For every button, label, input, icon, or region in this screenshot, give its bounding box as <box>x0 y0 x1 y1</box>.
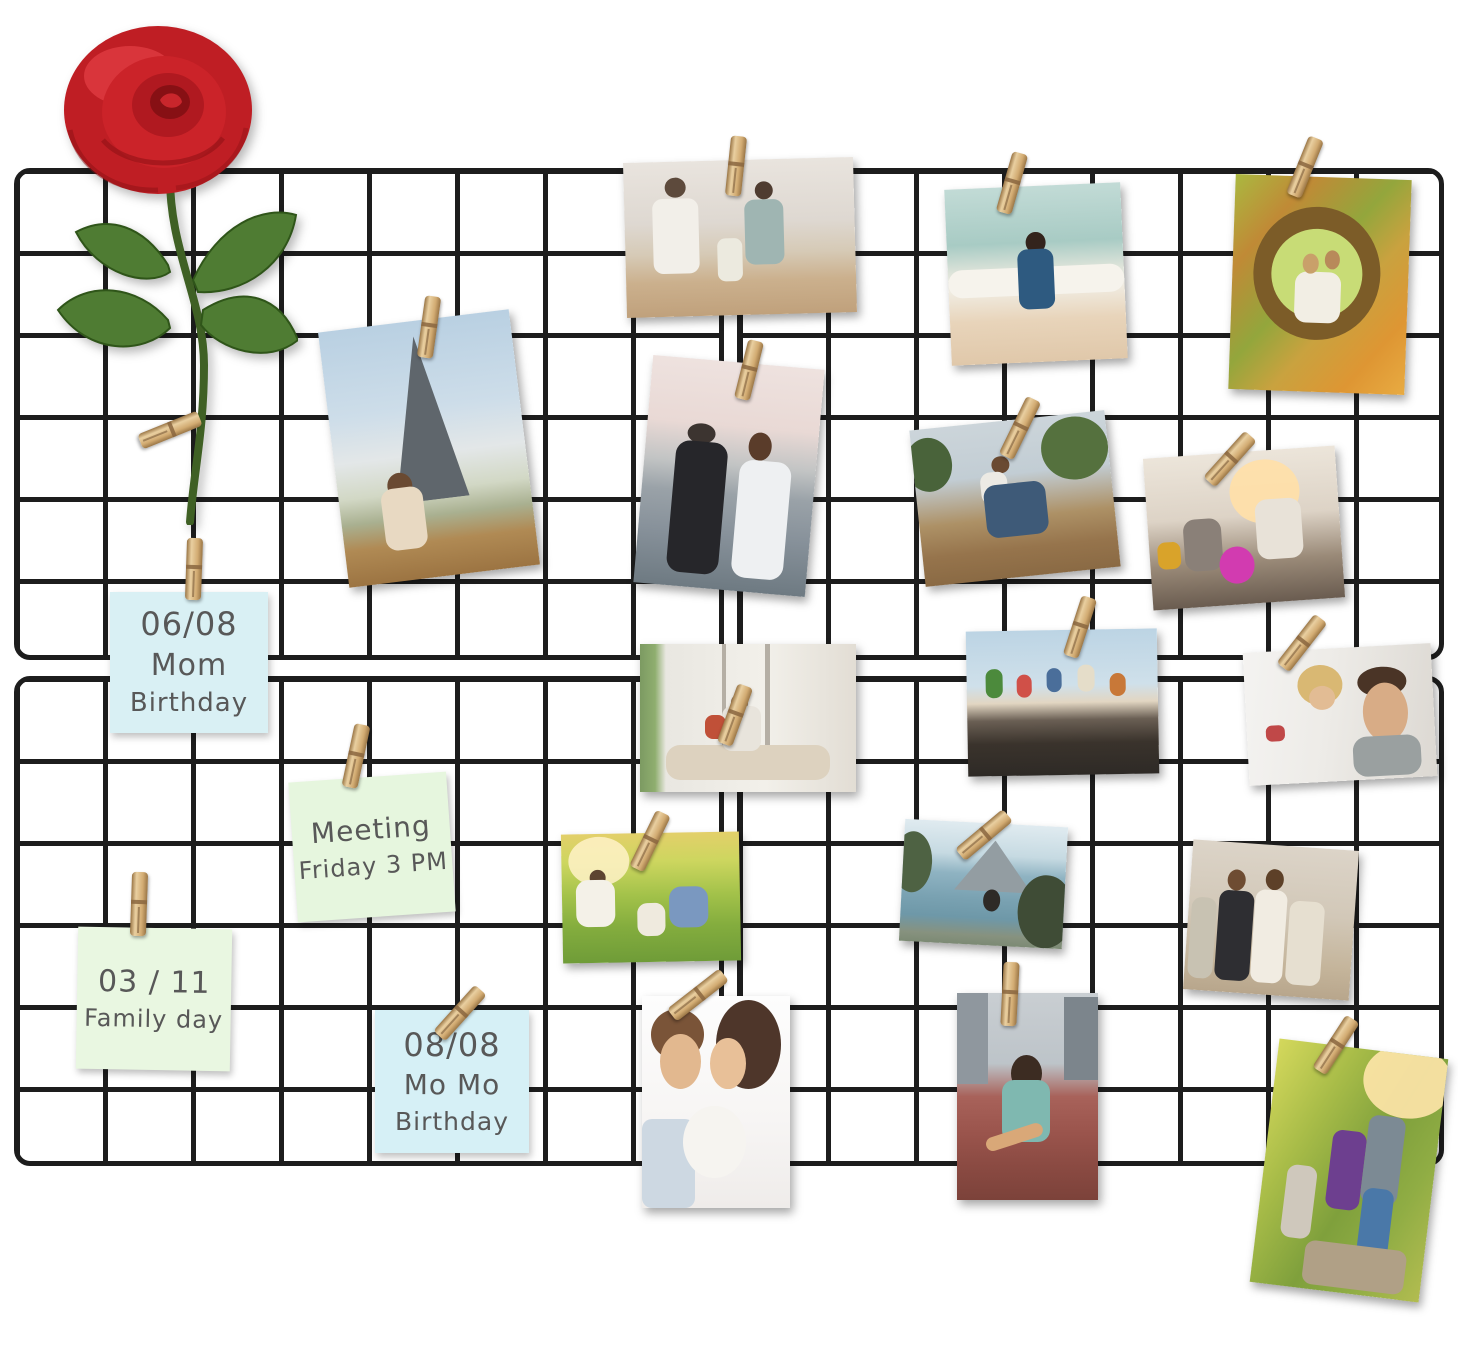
clothespin <box>734 339 764 401</box>
photo-wall-scene: 06/08MomBirthdayMeetingFriday 3 PM03 / 1… <box>0 0 1458 1347</box>
clothespin <box>667 968 729 1021</box>
clothespin <box>185 538 203 601</box>
clothespin <box>1312 1015 1359 1076</box>
clothespin <box>1203 431 1256 488</box>
clothespin <box>1063 595 1097 659</box>
clothespin <box>725 135 747 196</box>
clothespin <box>137 411 202 450</box>
clothespin <box>433 985 486 1042</box>
clothespin <box>1277 614 1328 673</box>
clothespin <box>130 872 148 937</box>
clothespin <box>629 810 671 873</box>
clothespin <box>955 809 1013 861</box>
clothespin <box>717 683 753 747</box>
clothespin <box>417 295 441 359</box>
clothespin <box>996 151 1028 215</box>
clothespin <box>1000 962 1019 1027</box>
clothespin <box>1286 135 1324 198</box>
clothespin <box>999 396 1041 461</box>
clothespin <box>342 723 371 789</box>
pins-layer <box>0 0 1458 1347</box>
